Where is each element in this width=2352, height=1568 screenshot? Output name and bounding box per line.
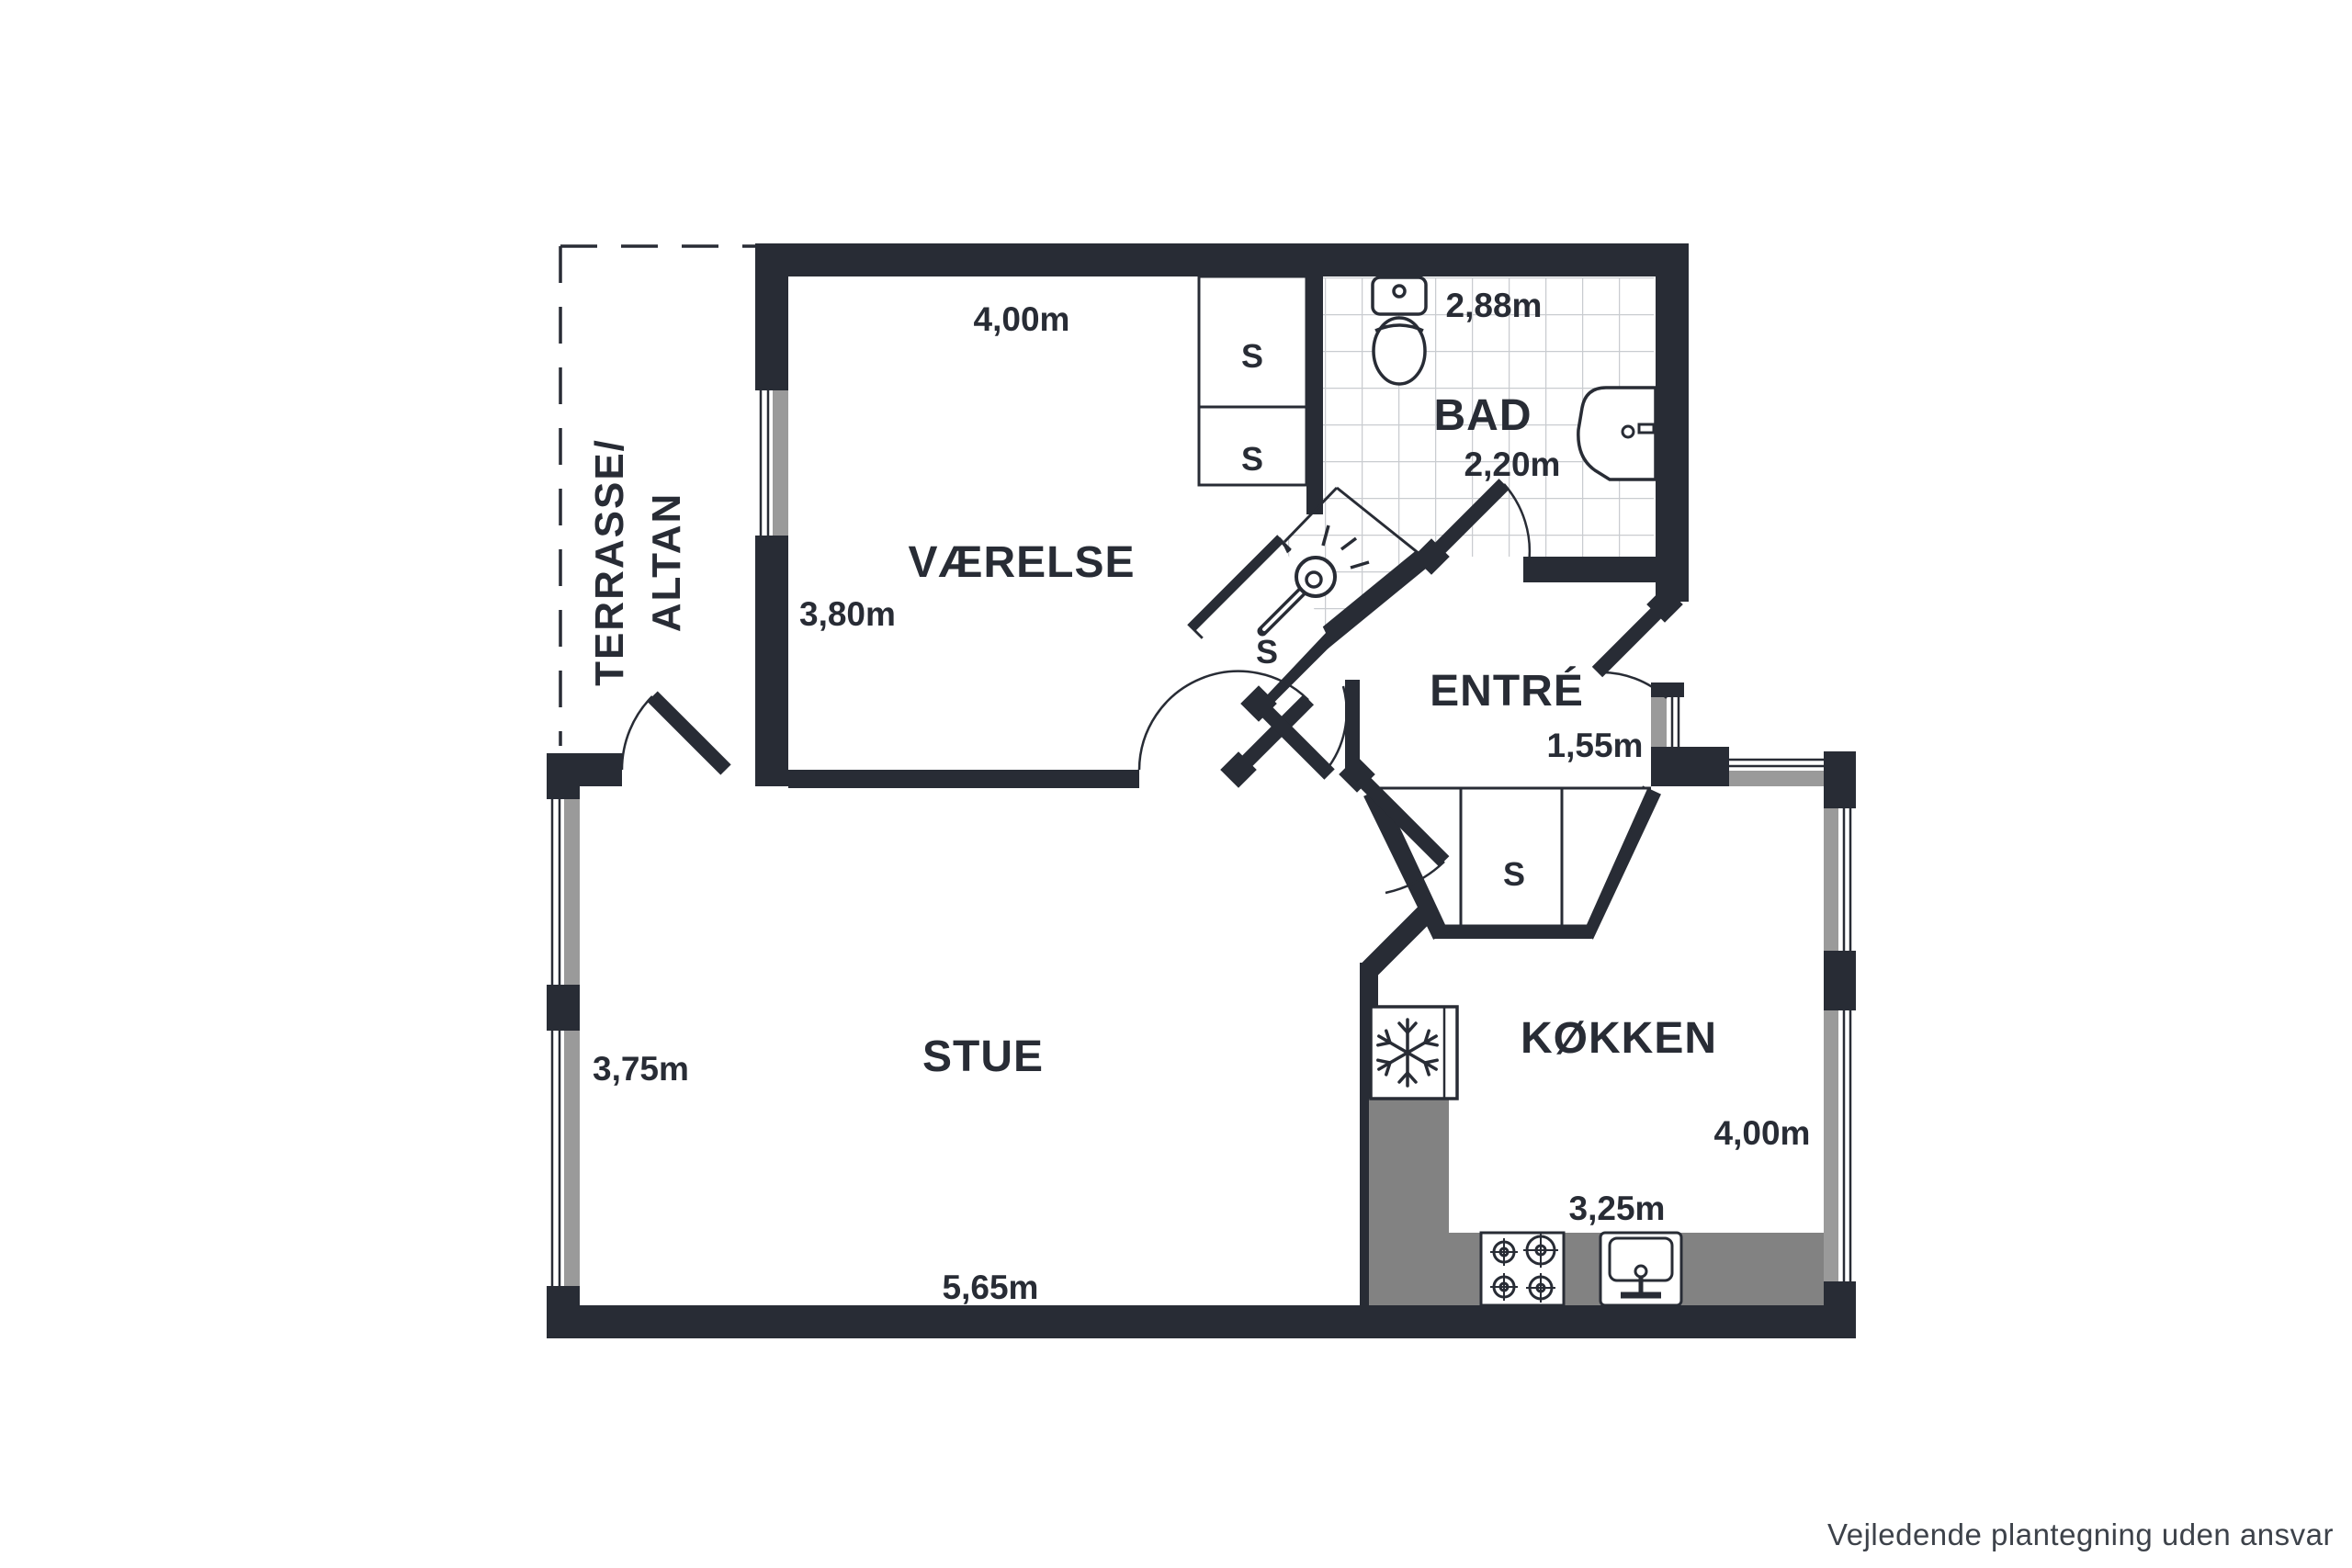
room-label-kitchen: KØKKEN [1521, 1014, 1717, 1063]
window-kitchen-north [1729, 753, 1824, 786]
room-label-terrace-line2: ALTAN [644, 492, 689, 633]
dim-living-width: 5,65m [943, 1269, 1039, 1306]
stove-icon [1481, 1233, 1564, 1305]
floorplan-page: TERRASSE/ ALTAN 4,00m VÆRELSE 3,80m 2,88… [0, 0, 2352, 1568]
window-living-west-upper [547, 799, 580, 985]
window-kitchen-east-upper [1824, 808, 1856, 951]
dim-bedroom-depth: 3,80m [799, 595, 896, 633]
terrace-door [622, 691, 731, 774]
window-bedroom-west [755, 390, 788, 536]
disclaimer-text: Vejledende plantegning uden ansvar [1827, 1517, 2334, 1551]
toilet-icon [1373, 277, 1426, 384]
wall-kitchen-nw-diagonal [1369, 906, 1433, 970]
wall-bath-west [1306, 276, 1323, 514]
fridge-icon [1371, 1007, 1457, 1099]
closet-label: S [1503, 855, 1525, 893]
room-label-terrace-line1: TERRASSE/ [587, 438, 632, 686]
kitchen-sink-icon [1600, 1233, 1681, 1305]
closet-label: S [1241, 337, 1263, 375]
closet-label: S [1241, 440, 1263, 478]
hall-entry-door [1240, 685, 1347, 780]
wall-bottom-outer [547, 1305, 1856, 1338]
front-door [1592, 586, 1683, 698]
wall-entry-corner [1651, 747, 1729, 786]
room-label-bath: BAD [1434, 391, 1532, 440]
wall-top-outer [755, 243, 1689, 276]
dim-living-depth: 3,75m [593, 1050, 689, 1088]
room-label-bedroom: VÆRELSE [908, 538, 1135, 587]
dim-bedroom-width: 4,00m [974, 300, 1070, 338]
window-kitchen-east-lower [1824, 1010, 1856, 1281]
window-entry-east [1651, 697, 1684, 747]
bathroom-sink-icon [1578, 388, 1656, 479]
closet-label: S [1256, 633, 1278, 671]
wall-bath-east [1656, 243, 1689, 602]
dim-kitchen-depth: 4,00m [1714, 1114, 1811, 1152]
wall-bedroom-south [788, 770, 1139, 788]
window-living-west-lower [547, 1031, 580, 1286]
wall-bath-south [1523, 557, 1656, 582]
room-label-entry: ENTRÉ [1430, 666, 1584, 716]
dim-bath-width: 2,88m [1446, 287, 1543, 324]
wall-living-north [547, 753, 622, 786]
floorplan-drawing: TERRASSE/ ALTAN 4,00m VÆRELSE 3,80m 2,88… [0, 0, 2352, 1568]
dim-entry-width: 1,55m [1547, 727, 1644, 764]
room-label-living: STUE [922, 1032, 1044, 1081]
dim-kitchen-width: 3,25m [1569, 1190, 1666, 1227]
dim-bath-depth: 2,20m [1464, 446, 1561, 483]
